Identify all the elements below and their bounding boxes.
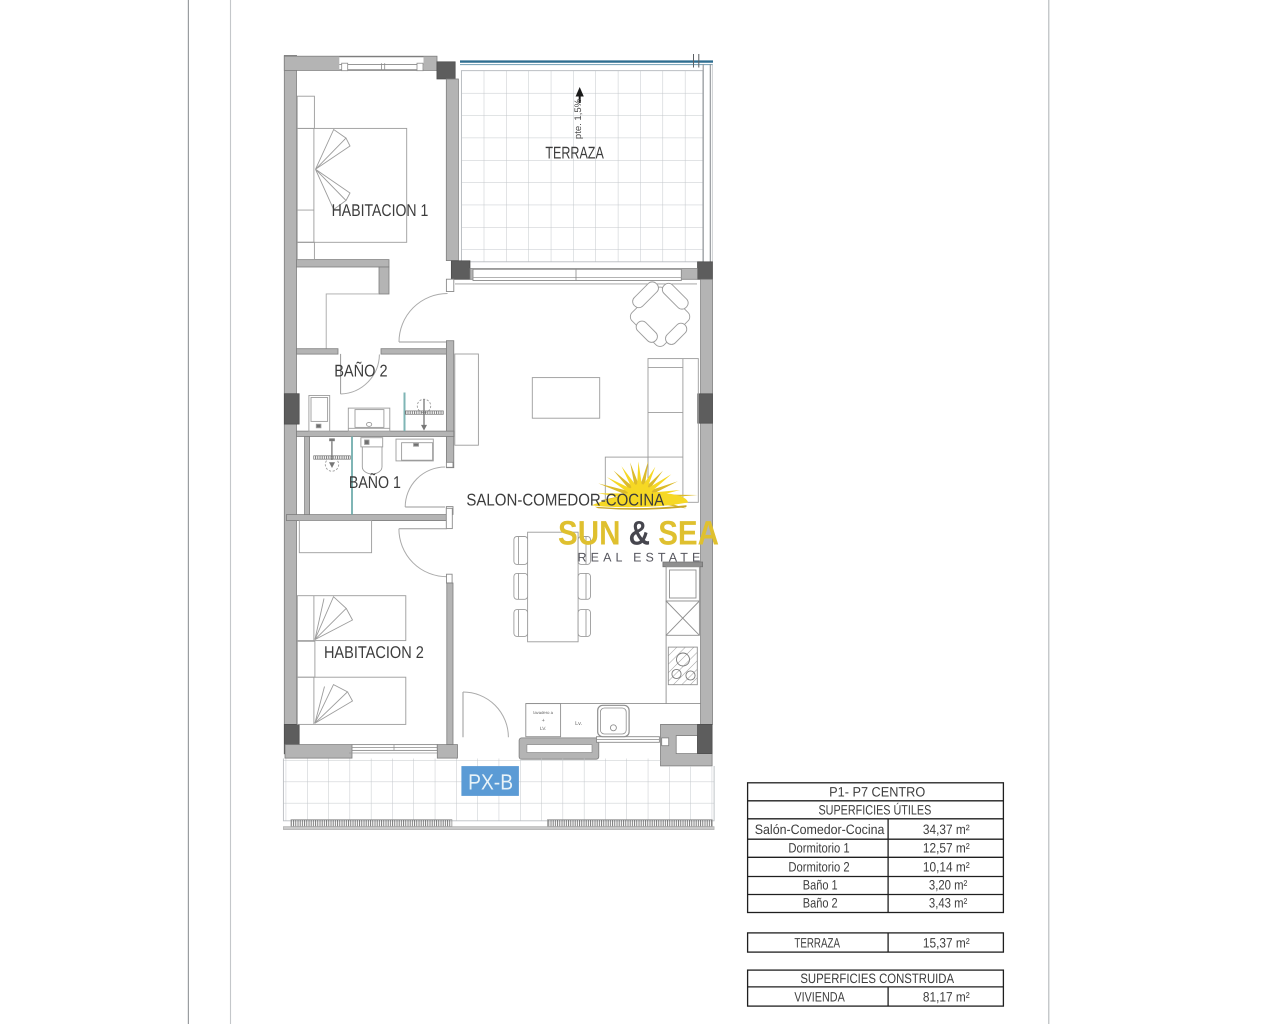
svg-text:+: +: [542, 718, 545, 724]
svg-text:HABITACION 1: HABITACION 1: [332, 201, 429, 220]
svg-text:REALESTATE: REALESTATE: [578, 551, 705, 565]
svg-text:3,20 m²: 3,20 m²: [929, 878, 968, 893]
svg-text:12,57 m²: 12,57 m²: [923, 841, 970, 856]
svg-text:pte. 1,5%: pte. 1,5%: [573, 98, 584, 139]
svg-text:lavadero a: lavadero a: [533, 710, 553, 715]
svg-text:Salón-Comedor-Cocina: Salón-Comedor-Cocina: [755, 822, 885, 837]
svg-text:PX-B: PX-B: [468, 769, 513, 794]
svg-text:3,43 m²: 3,43 m²: [929, 896, 968, 911]
svg-text:BAÑO 2: BAÑO 2: [334, 361, 387, 380]
svg-text:34,37 m²: 34,37 m²: [923, 822, 970, 837]
svg-text:81,17 m²: 81,17 m²: [923, 990, 970, 1005]
svg-text:Dormitorio 1: Dormitorio 1: [788, 841, 849, 856]
svg-text:Lv.: Lv.: [575, 721, 582, 727]
svg-text:BAÑO 1: BAÑO 1: [349, 473, 401, 492]
svg-text:SUN & SEA: SUN & SEA: [558, 515, 719, 553]
svg-text:10,14 m²: 10,14 m²: [923, 859, 970, 874]
svg-text:LV.: LV.: [540, 726, 546, 732]
svg-text:HABITACION 2: HABITACION 2: [324, 643, 424, 662]
svg-text:SALON-COMEDOR-COCINA: SALON-COMEDOR-COCINA: [466, 490, 664, 509]
svg-text:Dormitorio 2: Dormitorio 2: [788, 859, 849, 874]
svg-text:Baño 2: Baño 2: [803, 896, 838, 911]
svg-text:P1- P7 CENTRO: P1- P7 CENTRO: [829, 784, 925, 799]
svg-text:15,37 m²: 15,37 m²: [923, 935, 970, 950]
svg-text:TERRAZA: TERRAZA: [794, 935, 840, 950]
svg-text:TERRAZA: TERRAZA: [545, 143, 604, 162]
svg-text:SUPERFICIES ÚTILES: SUPERFICIES ÚTILES: [818, 803, 931, 818]
svg-text:SUPERFICIES CONSTRUIDA: SUPERFICIES CONSTRUIDA: [800, 971, 954, 986]
svg-text:Baño 1: Baño 1: [803, 878, 838, 893]
svg-text:VIVIENDA: VIVIENDA: [794, 990, 845, 1005]
